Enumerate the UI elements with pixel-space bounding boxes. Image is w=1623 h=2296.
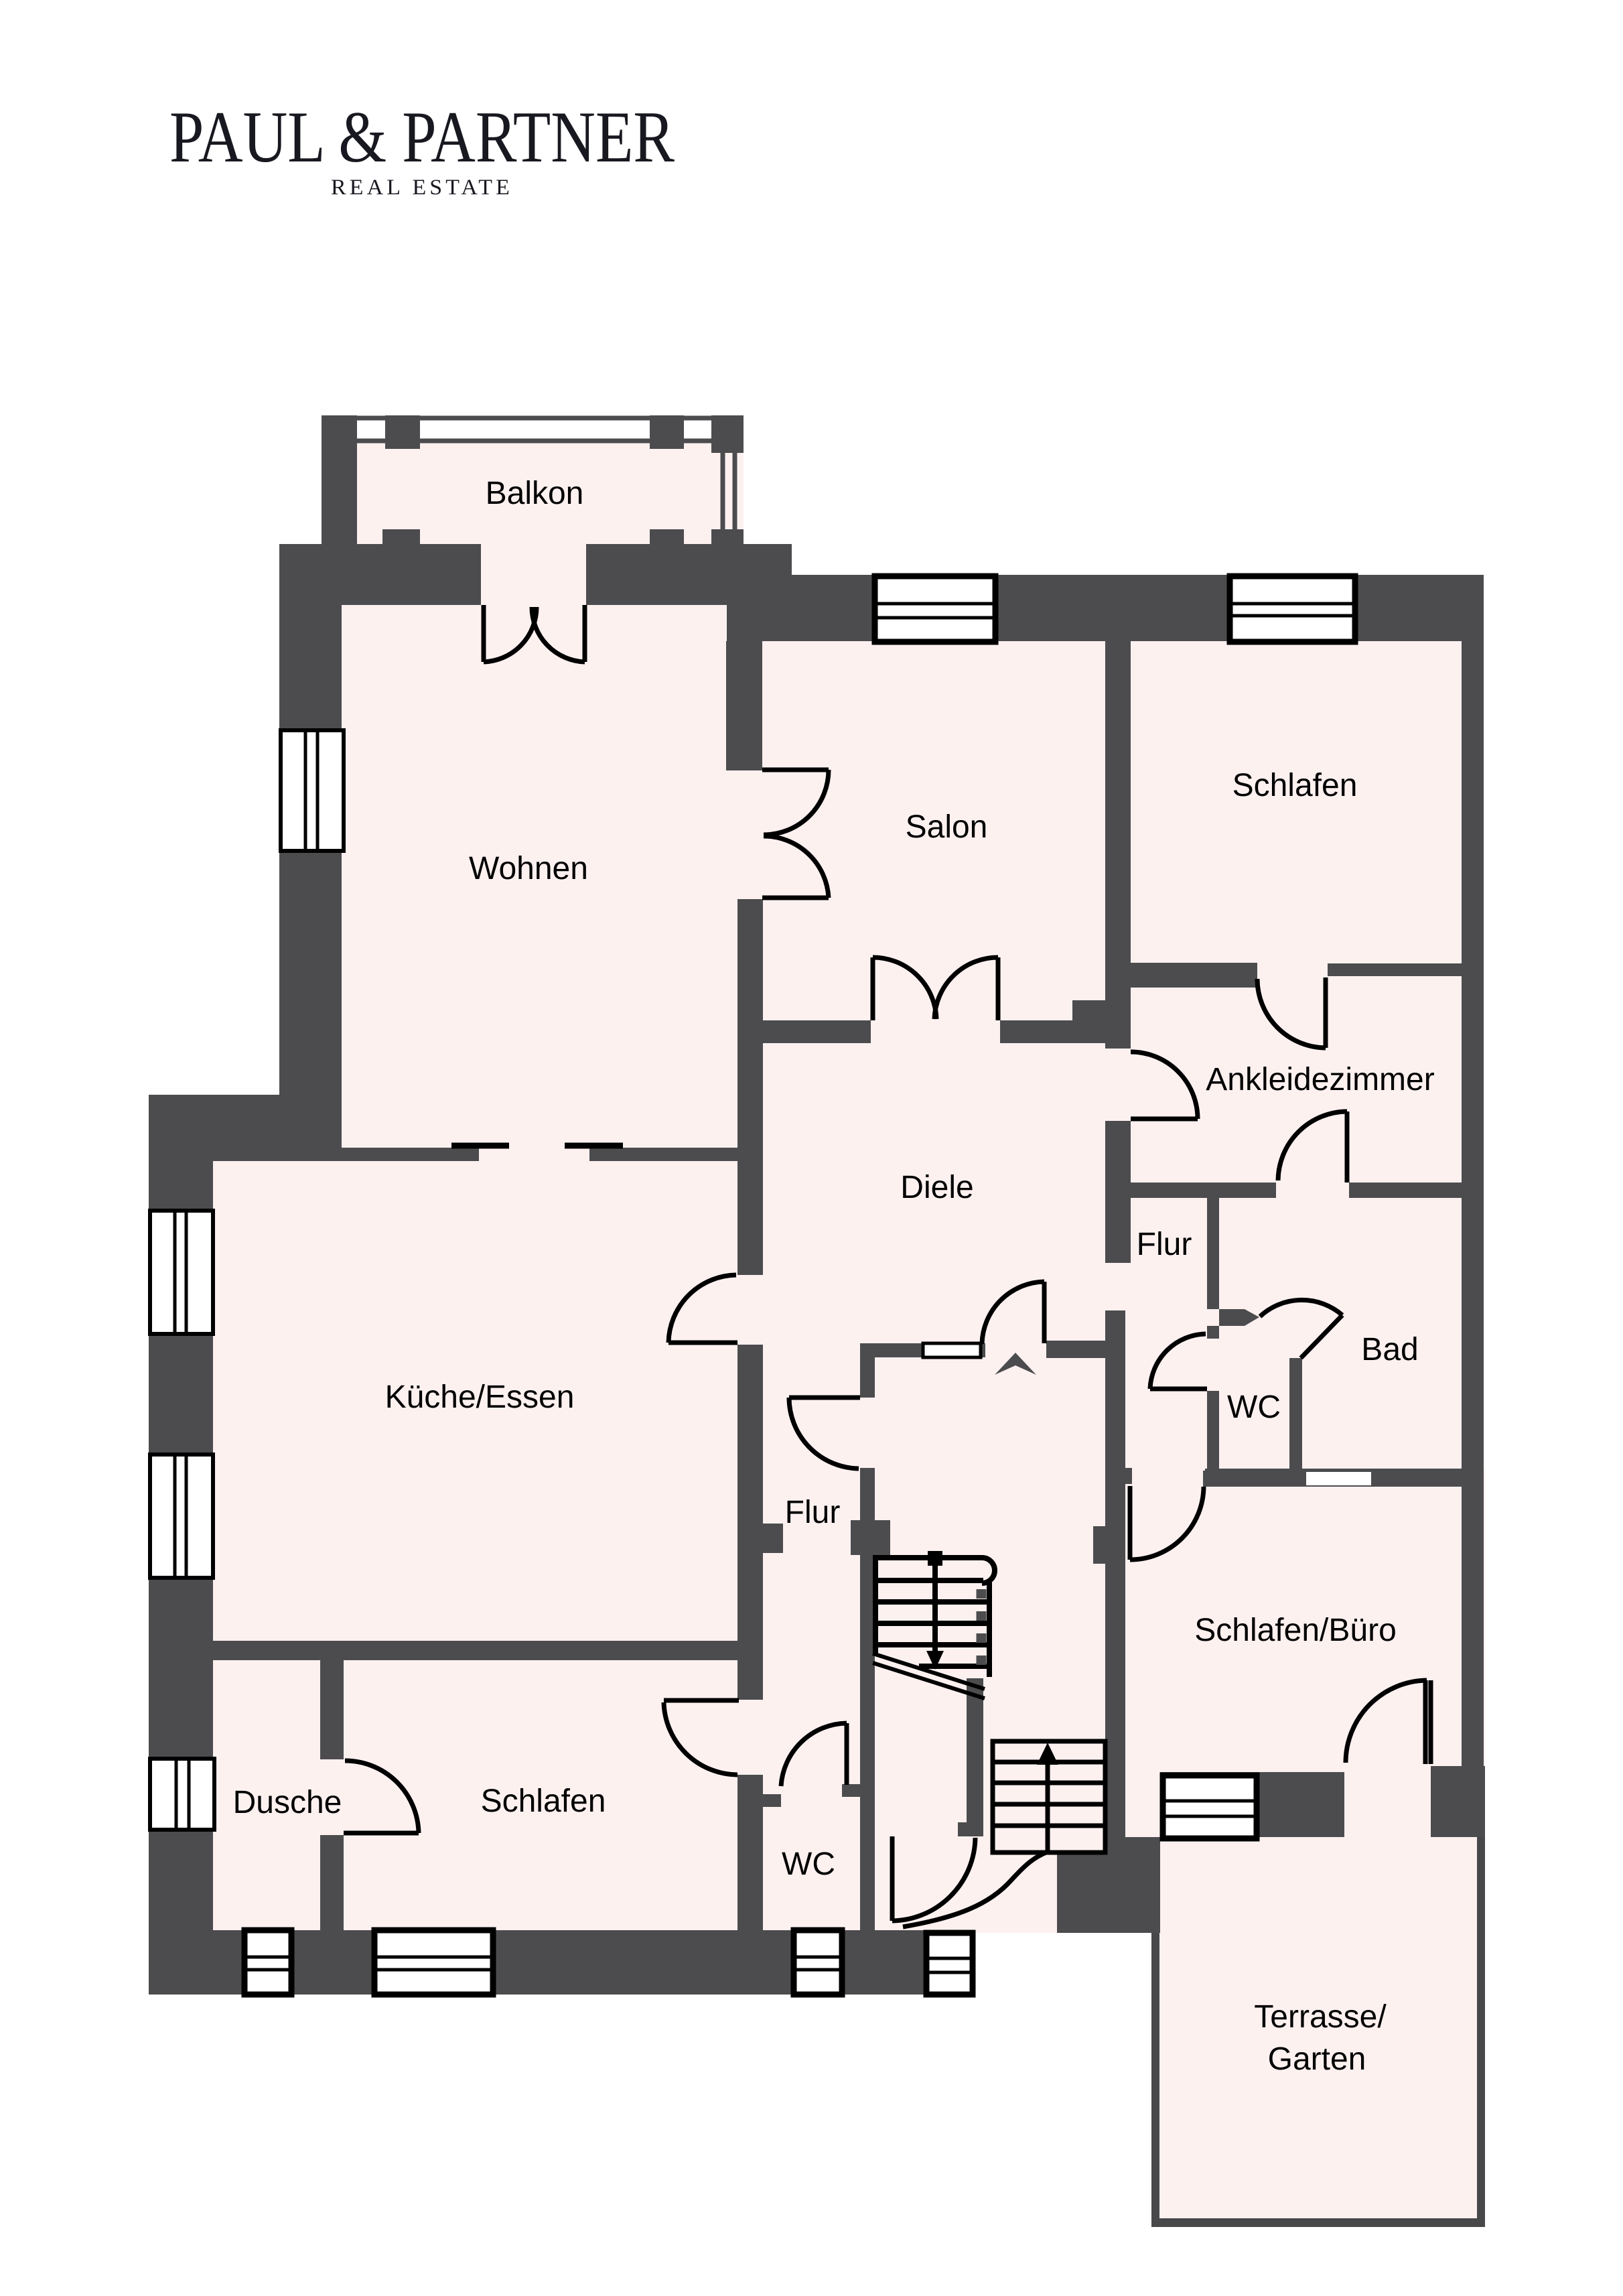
svg-text:Garten: Garten: [1268, 2041, 1366, 2077]
svg-text:Bad: Bad: [1361, 1332, 1418, 1367]
svg-text:Flur: Flur: [785, 1495, 841, 1530]
svg-text:WC: WC: [782, 1846, 835, 1882]
svg-text:Balkon: Balkon: [486, 476, 584, 511]
svg-text:PAUL & PARTNER: PAUL & PARTNER: [169, 96, 675, 178]
svg-text:Küche/Essen: Küche/Essen: [385, 1379, 575, 1415]
svg-text:Diele: Diele: [900, 1170, 973, 1205]
svg-text:Schlafen: Schlafen: [481, 1783, 606, 1819]
svg-text:Wohnen: Wohnen: [469, 851, 588, 886]
svg-text:Ankleidezimmer: Ankleidezimmer: [1206, 1062, 1434, 1097]
svg-text:Dusche: Dusche: [233, 1785, 342, 1820]
svg-text:Flur: Flur: [1137, 1227, 1192, 1262]
svg-text:Salon: Salon: [906, 809, 988, 845]
svg-text:REAL ESTATE: REAL ESTATE: [331, 176, 513, 200]
svg-text:Schlafen: Schlafen: [1232, 768, 1358, 803]
svg-text:Schlafen/Büro: Schlafen/Büro: [1194, 1613, 1397, 1648]
svg-text:Terrasse/: Terrasse/: [1254, 1999, 1387, 2035]
svg-text:WC: WC: [1227, 1390, 1281, 1425]
